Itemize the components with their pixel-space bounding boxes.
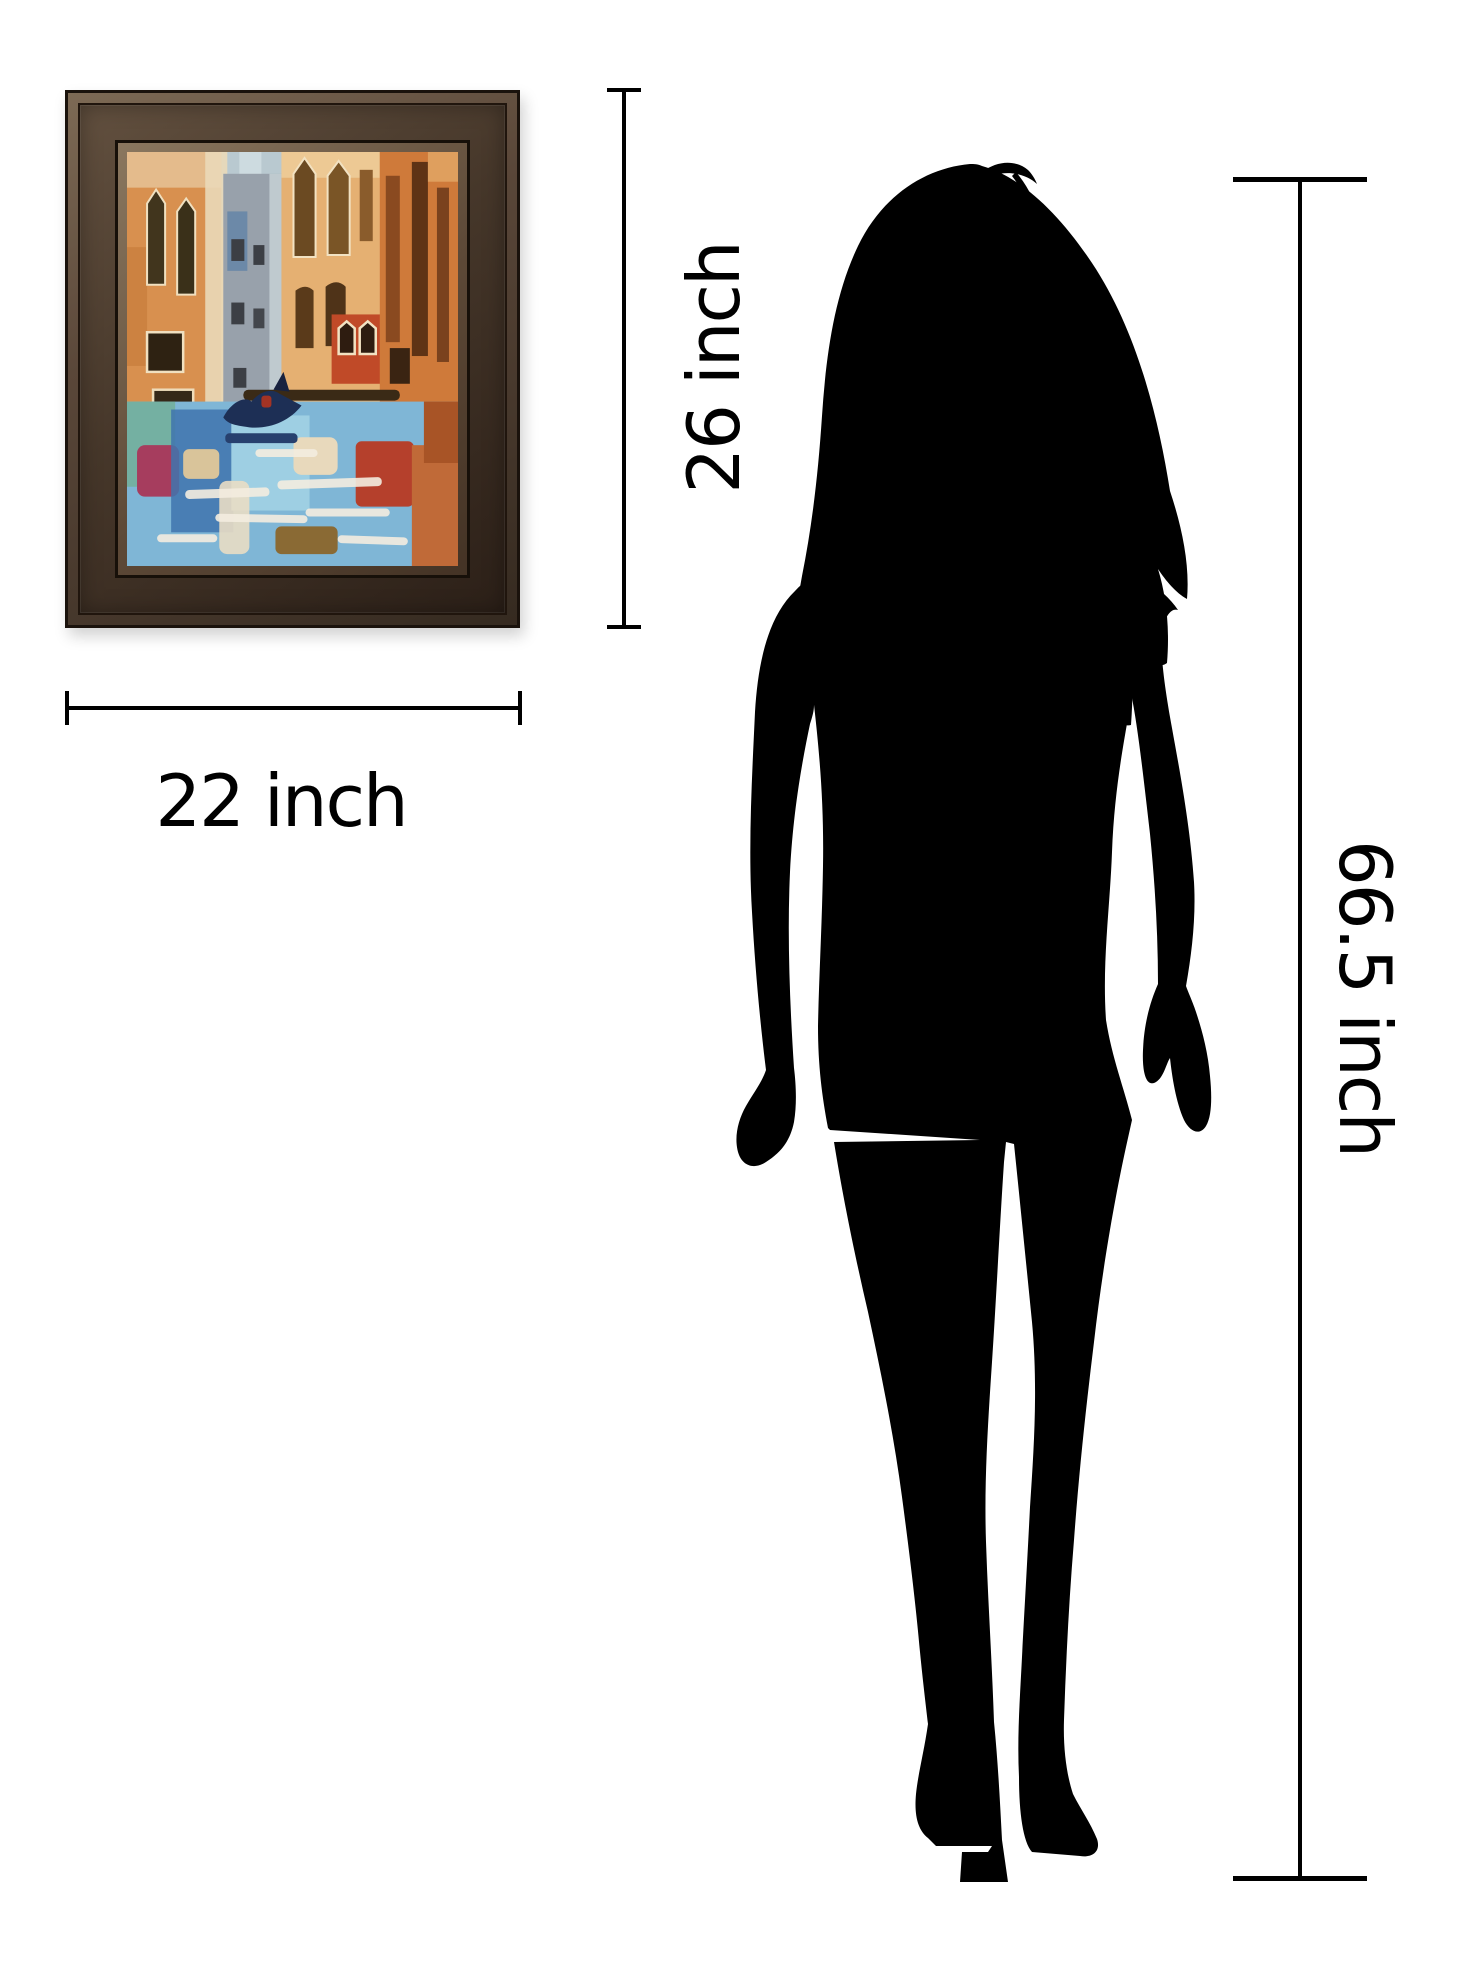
artwork-width-dimension-line xyxy=(65,691,522,725)
person-height-label: 66.5 inch xyxy=(1329,840,1401,1156)
dimension-line xyxy=(69,706,518,710)
dimension-tick-bottom xyxy=(607,625,641,629)
venice-canal-painting-art xyxy=(127,152,458,566)
artwork-width-label: 22 inch xyxy=(155,765,406,837)
picture-frame xyxy=(65,90,520,628)
product-size-chart: 26 inch 22 inch 66.5 inch xyxy=(0,0,1463,1975)
dimension-line xyxy=(1298,182,1302,1876)
dimension-tick-right xyxy=(518,691,522,725)
venice-canal-painting xyxy=(127,152,458,566)
dimension-tick-bottom xyxy=(1233,1876,1367,1881)
artwork-height-dimension-line xyxy=(607,88,641,629)
person-silhouette xyxy=(730,162,1250,1883)
person-silhouette-art xyxy=(730,162,1250,1883)
dimension-line xyxy=(622,92,626,625)
